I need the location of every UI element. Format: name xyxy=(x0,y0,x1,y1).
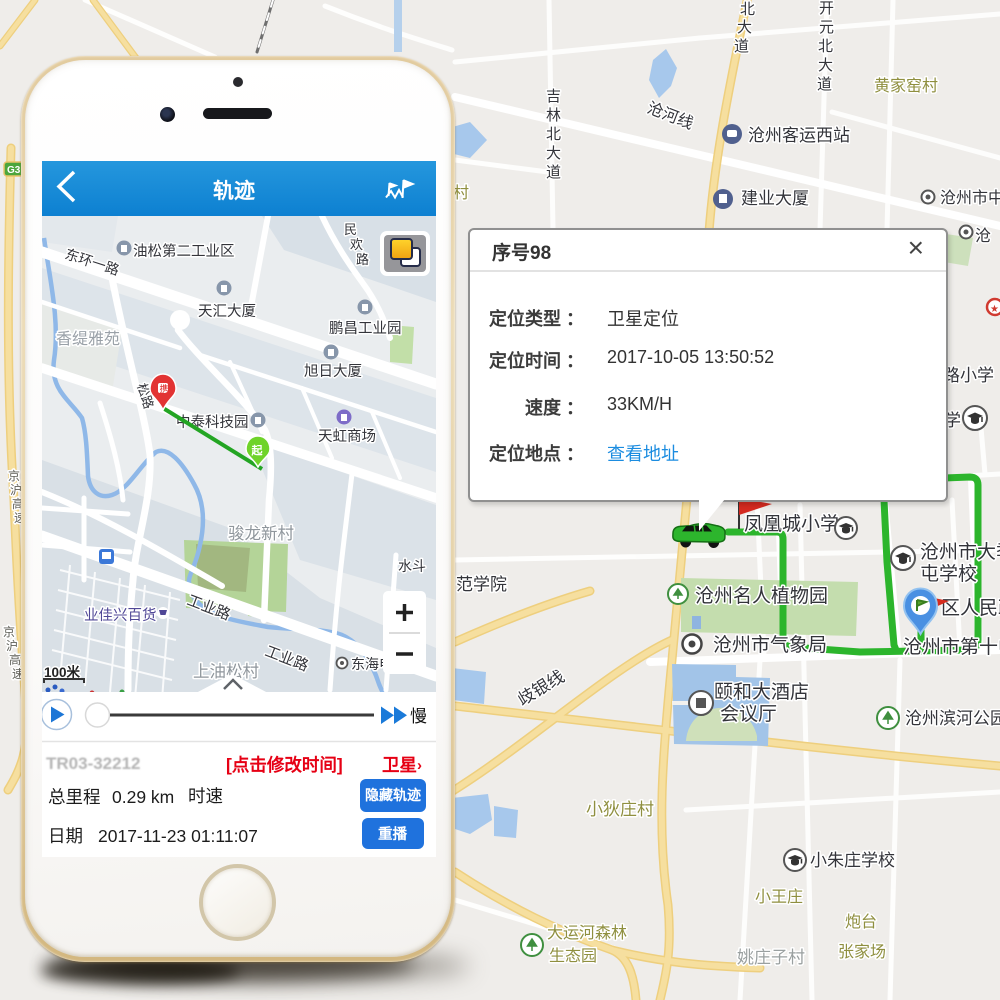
svg-text:业佳兴百货: 业佳兴百货 xyxy=(84,607,157,624)
svg-text:慢: 慢 xyxy=(410,706,427,726)
svg-text:黄家窑村: 黄家窑村 xyxy=(874,77,938,95)
svg-text:大: 大 xyxy=(818,57,833,74)
svg-text:起: 起 xyxy=(251,443,264,457)
svg-text:水斗: 水斗 xyxy=(398,558,426,574)
svg-text:沧: 沧 xyxy=(975,227,991,245)
svg-text:[点击修改时间]: [点击修改时间] xyxy=(226,755,343,775)
svg-text:北: 北 xyxy=(546,126,561,143)
svg-text:★: ★ xyxy=(990,304,999,315)
svg-text:区人民政: 区人民政 xyxy=(941,597,1000,619)
svg-text:骏龙新村: 骏龙新村 xyxy=(228,524,294,543)
svg-text:屯学校: 屯学校 xyxy=(920,563,977,585)
svg-text:沧州名人植物园: 沧州名人植物园 xyxy=(695,585,828,607)
svg-text:路小学: 路小学 xyxy=(943,366,994,385)
svg-text:沧州滨河公园: 沧州滨河公园 xyxy=(905,709,1000,728)
svg-text:卫星: 卫星 xyxy=(382,755,417,775)
svg-text:油松第二工业区: 油松第二工业区 xyxy=(133,242,235,260)
svg-text:沧州市第十中: 沧州市第十中 xyxy=(903,636,1000,658)
svg-text:北: 北 xyxy=(818,38,833,55)
svg-text:香缇雅苑: 香缇雅苑 xyxy=(56,330,120,348)
svg-text:天汇大厦: 天汇大厦 xyxy=(198,303,256,320)
svg-text:隐藏轨迹: 隐藏轨迹 xyxy=(365,787,421,803)
svg-text:小朱庄学校: 小朱庄学校 xyxy=(810,851,895,870)
svg-text:元: 元 xyxy=(819,19,834,36)
svg-text:京: 京 xyxy=(8,469,20,483)
svg-text:会议厅: 会议厅 xyxy=(720,703,777,725)
svg-text:大运河森林: 大运河森林 xyxy=(547,924,627,942)
svg-text:林: 林 xyxy=(546,107,561,124)
svg-text:京: 京 xyxy=(3,625,15,639)
svg-text:路: 路 xyxy=(356,252,369,267)
svg-text:重播: 重播 xyxy=(378,825,407,843)
svg-text:大: 大 xyxy=(546,145,561,162)
svg-text:100米: 100米 xyxy=(44,664,81,680)
svg-text:开: 开 xyxy=(819,0,834,17)
svg-text:2017-11-23 01:11:07: 2017-11-23 01:11:07 xyxy=(98,826,258,846)
svg-text:小王庄: 小王庄 xyxy=(755,888,803,906)
svg-text:道: 道 xyxy=(734,38,749,55)
svg-text:张家场: 张家场 xyxy=(838,943,886,961)
svg-text:小狄庄村: 小狄庄村 xyxy=(586,800,654,819)
svg-text:0.29 km: 0.29 km xyxy=(112,787,174,807)
svg-text:总里程: 总里程 xyxy=(48,787,101,807)
svg-text:旭日大厦: 旭日大厦 xyxy=(304,363,362,380)
svg-text:高: 高 xyxy=(9,652,21,667)
svg-text:生态园: 生态园 xyxy=(549,947,597,965)
svg-text:吉: 吉 xyxy=(546,88,561,105)
svg-text:建业大厦: 建业大厦 xyxy=(741,189,809,208)
svg-text:炮台: 炮台 xyxy=(845,913,877,931)
svg-text:沧州市大季: 沧州市大季 xyxy=(920,541,1000,563)
svg-text:G3: G3 xyxy=(7,165,21,176)
svg-text:日期: 日期 xyxy=(48,826,83,846)
svg-text:沧州市气象局: 沧州市气象局 xyxy=(713,634,827,656)
svg-text:凤凰城小学: 凤凰城小学 xyxy=(744,513,839,535)
svg-text:姚庄子村: 姚庄子村 xyxy=(737,948,805,967)
svg-text:欢: 欢 xyxy=(350,237,363,252)
svg-text:道: 道 xyxy=(546,164,561,181)
svg-text:携: 携 xyxy=(160,383,169,394)
svg-text:颐和大酒店: 颐和大酒店 xyxy=(714,681,809,703)
svg-text:民: 民 xyxy=(344,222,357,237)
svg-text:大: 大 xyxy=(737,19,752,36)
svg-text:道: 道 xyxy=(817,76,832,93)
svg-text:TR03-32212: TR03-32212 xyxy=(46,754,141,773)
svg-text:北: 北 xyxy=(740,1,755,18)
svg-text:轨迹: 轨迹 xyxy=(213,179,255,203)
svg-text:沧州市中: 沧州市中 xyxy=(940,189,1000,207)
svg-text:范学院: 范学院 xyxy=(456,575,507,594)
svg-text:沪: 沪 xyxy=(6,639,18,653)
svg-text:时速: 时速 xyxy=(188,786,223,806)
svg-text:天虹商场: 天虹商场 xyxy=(318,428,376,445)
svg-text:鹏昌工业园: 鹏昌工业园 xyxy=(329,320,402,337)
svg-text:沧州客运西站: 沧州客运西站 xyxy=(748,126,850,145)
svg-text:›: › xyxy=(417,757,422,774)
